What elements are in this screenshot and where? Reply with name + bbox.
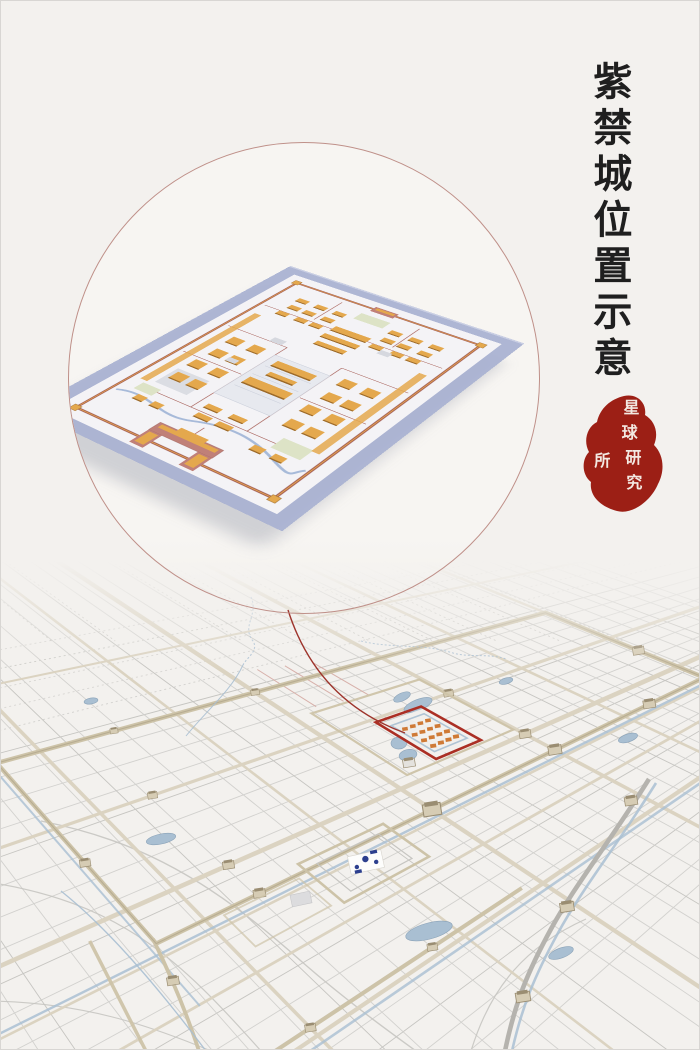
gate-tower	[166, 975, 179, 986]
gate-tower	[253, 887, 266, 898]
gate-tower	[422, 800, 442, 817]
seal-char: 所	[594, 454, 610, 470]
lake	[498, 676, 513, 685]
gate-tower	[519, 728, 532, 739]
gate-tower	[79, 857, 91, 867]
seal-char: 研	[625, 451, 641, 467]
publisher-seal: 星 球 研 究 所	[577, 393, 671, 517]
gate-tower	[250, 688, 259, 696]
gate-tower	[304, 1022, 316, 1032]
lake	[404, 917, 455, 945]
lake	[84, 697, 99, 705]
gate-tower	[559, 900, 574, 913]
seal-char: 究	[626, 476, 642, 492]
gate-tower	[624, 794, 638, 806]
poster-page: 紫禁城位置示意 星 球 研 究 所	[0, 0, 700, 1050]
gate-tower	[427, 942, 438, 952]
poster-title: 紫禁城位置示意	[587, 61, 630, 411]
seal-char: 星	[624, 401, 640, 417]
gate-tower	[547, 743, 562, 755]
gate-tower	[147, 790, 158, 799]
seal-char: 球	[622, 426, 638, 442]
gate-tower	[515, 989, 531, 1003]
gate-tower	[632, 645, 645, 656]
gate-tower	[402, 757, 415, 768]
gate-tower	[222, 859, 235, 870]
forbidden-city-detail-circle	[68, 142, 540, 614]
xiannongtan-enclosure	[224, 878, 331, 946]
gate-tower	[110, 727, 119, 734]
gate-tower	[643, 698, 656, 709]
